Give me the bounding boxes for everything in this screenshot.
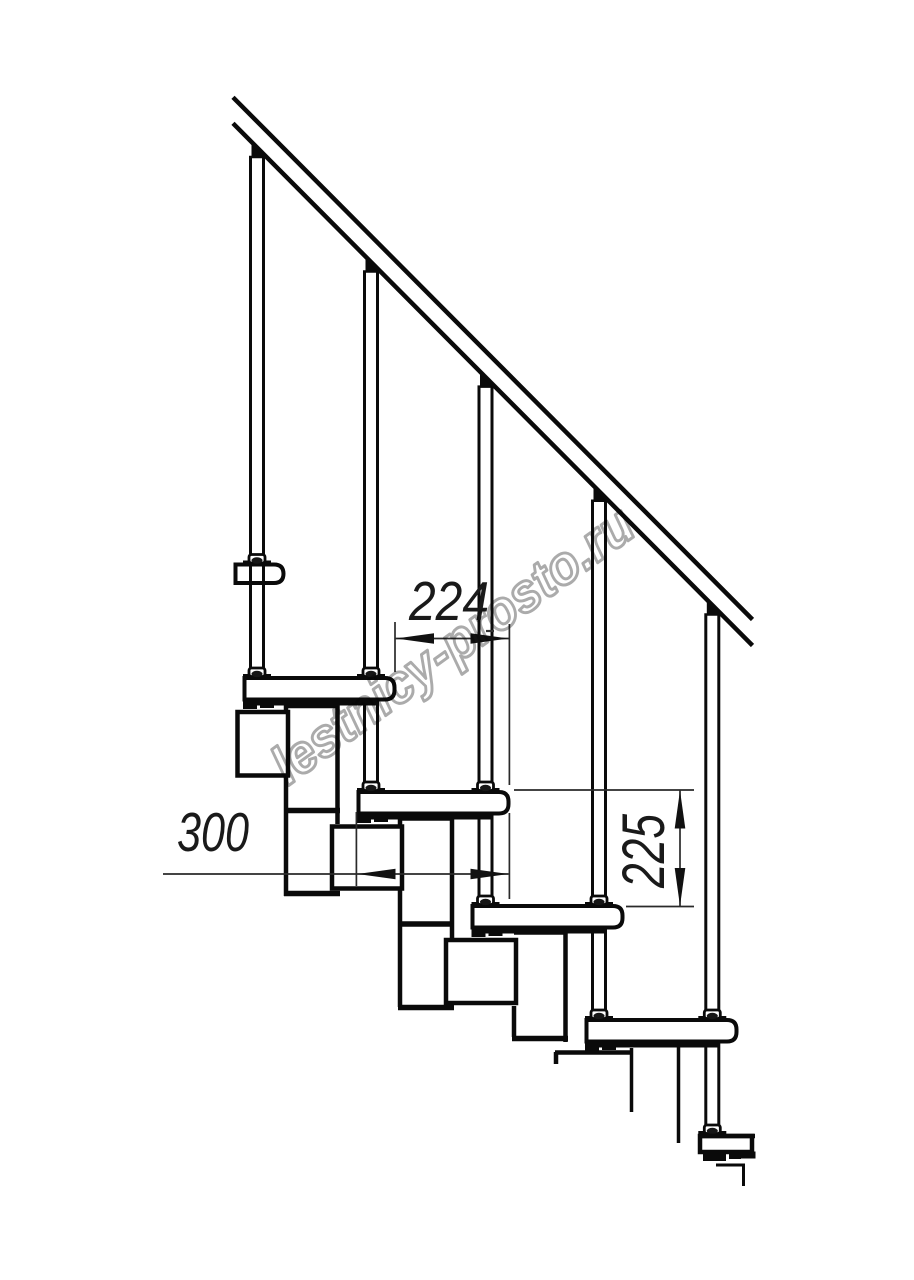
svg-text:225: 225: [610, 814, 677, 889]
svg-text:300: 300: [177, 801, 249, 863]
svg-text:lestnicy-prosto.ru: lestnicy-prosto.ru: [260, 494, 645, 795]
